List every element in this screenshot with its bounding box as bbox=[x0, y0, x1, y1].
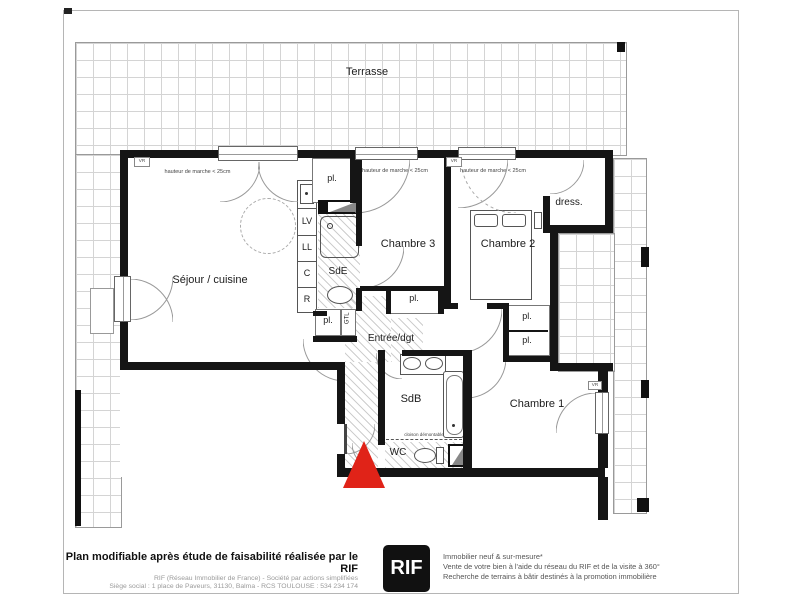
wall bbox=[598, 432, 608, 468]
footer-left-block: Plan modifiable après étude de faisabili… bbox=[63, 551, 358, 592]
footer-service-line: Vente de votre bien à l'aide du réseau d… bbox=[443, 562, 693, 572]
door-arc bbox=[362, 246, 404, 288]
demountable-partition bbox=[386, 439, 462, 440]
label-lv: LV bbox=[295, 217, 319, 227]
toilet-bowl bbox=[414, 448, 436, 463]
floor-plan-page: VR VR VR Terrasse Séjour / cuisine Chamb… bbox=[0, 0, 800, 600]
label-chambre2: Chambre 2 bbox=[458, 238, 558, 250]
label-c: C bbox=[295, 269, 319, 279]
wall bbox=[337, 362, 345, 424]
footer-title: Plan modifiable après étude de faisabili… bbox=[63, 551, 358, 575]
label-closet: pl. bbox=[315, 174, 349, 184]
vr-tag: VR bbox=[588, 381, 602, 390]
wall bbox=[503, 356, 550, 362]
label-closet: pl. bbox=[507, 312, 547, 322]
footer-address-line: Siège social : 1 place de Paveurs, 31130… bbox=[63, 583, 358, 591]
wall bbox=[550, 225, 613, 233]
wall bbox=[120, 362, 345, 370]
sink-bowl bbox=[403, 357, 421, 370]
counter-divider bbox=[297, 261, 317, 262]
terrace-right bbox=[613, 158, 647, 514]
label-chambre3: Chambre 3 bbox=[358, 238, 458, 250]
door-arc bbox=[220, 162, 260, 202]
terrace-step bbox=[90, 288, 114, 334]
window bbox=[458, 147, 516, 160]
vr-tag: VR bbox=[134, 157, 150, 167]
label-sde: SdE bbox=[318, 266, 358, 277]
label-chambre1: Chambre 1 bbox=[487, 398, 587, 410]
wall bbox=[120, 320, 128, 370]
rif-logo: RIF bbox=[383, 545, 430, 592]
wall bbox=[360, 286, 444, 291]
window bbox=[218, 146, 298, 161]
door-arc bbox=[550, 160, 584, 194]
footer-company-line: RIF (Réseau Immobilier de France) - Soci… bbox=[63, 575, 358, 583]
wall bbox=[507, 330, 548, 332]
duct-triangle bbox=[452, 448, 463, 465]
terrace-pocket bbox=[558, 233, 615, 372]
sink-bowl bbox=[425, 357, 443, 370]
wall bbox=[298, 150, 355, 158]
duct-triangle bbox=[330, 202, 356, 212]
window bbox=[114, 276, 131, 322]
wall bbox=[120, 150, 128, 277]
footer-service-line: Immobilier neuf & sur-mesure* bbox=[443, 552, 693, 562]
window bbox=[595, 392, 609, 434]
wall bbox=[386, 286, 391, 314]
railing-post bbox=[75, 390, 81, 526]
counter-divider bbox=[297, 208, 317, 209]
wall bbox=[444, 158, 451, 309]
door-arc bbox=[355, 158, 410, 213]
partition-note: cloison démontable bbox=[388, 432, 460, 437]
door-arc bbox=[258, 162, 298, 202]
railing-post bbox=[641, 380, 649, 398]
terrace-left bbox=[75, 154, 122, 528]
bathtub-drain bbox=[452, 424, 455, 427]
sde-basin bbox=[327, 286, 353, 304]
wall bbox=[350, 158, 356, 203]
terrace-top bbox=[75, 42, 627, 156]
label-closet: pl. bbox=[507, 336, 547, 346]
label-dress: dress. bbox=[544, 197, 594, 208]
wall bbox=[356, 288, 362, 311]
railing-post bbox=[637, 498, 649, 512]
shower-drain bbox=[327, 223, 333, 229]
step-note: hauteur de marche < 25cm bbox=[150, 169, 245, 175]
round-table bbox=[240, 198, 296, 254]
wall bbox=[463, 350, 472, 468]
pillow bbox=[474, 214, 498, 227]
wall bbox=[550, 233, 558, 371]
vr-tag: VR bbox=[446, 157, 462, 167]
corner-mark bbox=[64, 8, 72, 14]
label-r: R bbox=[295, 295, 319, 305]
label-wc: WC bbox=[383, 447, 413, 458]
wall bbox=[378, 350, 385, 445]
wall bbox=[516, 150, 613, 158]
label-gtl: GTL bbox=[338, 315, 358, 322]
wall bbox=[550, 363, 613, 371]
step-note: hauteur de marche < 25cm bbox=[350, 168, 440, 174]
label-sejour: Séjour / cuisine bbox=[145, 274, 275, 286]
step-note: hauteur de marche < 25cm bbox=[448, 168, 538, 174]
label-sdb: SdB bbox=[386, 393, 436, 405]
wall bbox=[598, 477, 608, 520]
door-arc bbox=[458, 309, 502, 353]
door-arc bbox=[466, 358, 506, 398]
label-closet: pl. bbox=[398, 294, 430, 304]
duct-black bbox=[320, 202, 328, 212]
label-ll: LL bbox=[295, 243, 319, 253]
faucet-dot bbox=[305, 192, 308, 195]
wall bbox=[605, 150, 613, 233]
pillow bbox=[502, 214, 526, 227]
nightstand bbox=[534, 212, 542, 229]
counter-divider bbox=[297, 287, 317, 288]
toilet-tank bbox=[436, 447, 444, 464]
railing-post bbox=[617, 42, 625, 52]
shower-tray bbox=[320, 216, 359, 258]
counter-divider bbox=[297, 235, 317, 236]
railing-post bbox=[641, 247, 649, 267]
window bbox=[355, 147, 418, 160]
footer-right-block: Immobilier neuf & sur-mesure* Vente de v… bbox=[443, 552, 693, 582]
footer-service-line: Recherche de terrains à bâtir destinés à… bbox=[443, 572, 693, 582]
label-entree: Entrée/dgt bbox=[346, 333, 436, 344]
door-arc-dashed bbox=[461, 158, 516, 213]
entrance-marker bbox=[343, 441, 385, 488]
wall bbox=[402, 350, 463, 356]
label-terrasse: Terrasse bbox=[317, 66, 417, 78]
